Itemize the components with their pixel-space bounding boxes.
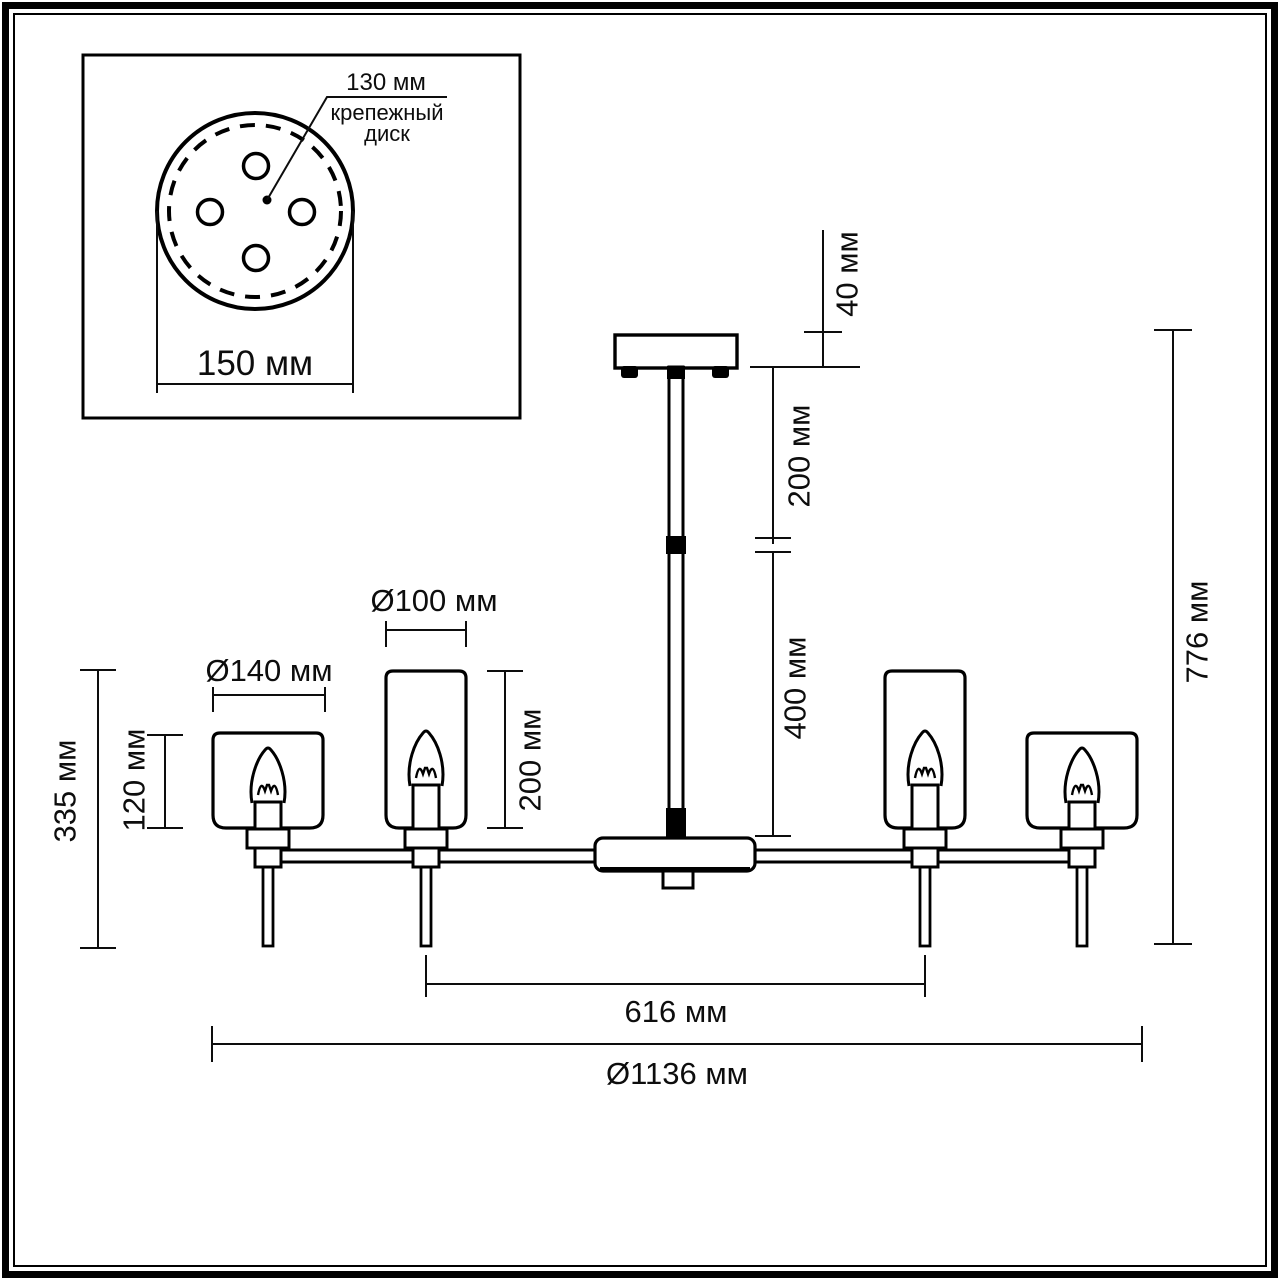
lamp-3-candle <box>912 785 938 829</box>
lamp-2-socket-upper <box>405 829 447 848</box>
lamp-4 <box>1027 733 1137 867</box>
dim-overall-height: 776 мм <box>1154 330 1215 944</box>
dim-outer-shade-diameter: Ø140 мм <box>205 653 332 712</box>
chandelier-fixture <box>213 335 1137 946</box>
dim-outer-shade-height-label: 120 мм <box>117 729 152 832</box>
dim-lower-rod: 400 мм <box>755 552 813 836</box>
canopy-foot-right <box>712 366 729 378</box>
lamp-1-socket-upper <box>247 829 289 848</box>
dim-canopy-height-label: 40 мм <box>830 231 865 317</box>
canopy-foot-left <box>621 366 638 378</box>
dim-overall-diameter-label: Ø1136 мм <box>606 1056 748 1091</box>
dim-inner-shade-diameter-label: Ø100 мм <box>370 583 497 618</box>
mounting-plate-circle <box>157 113 353 309</box>
lamp-3 <box>885 671 965 867</box>
dim-outer-shade-height: 120 мм <box>117 729 184 832</box>
chandelier-dimension-drawing: 130 мм крепежный диск 150 мм <box>0 0 1280 1280</box>
page: 130 мм крепежный диск 150 мм <box>0 0 1280 1280</box>
lamp-3-socket-upper <box>904 829 946 848</box>
disc-diameter-label: 130 мм <box>346 69 426 96</box>
dim-inner-lamps-span: 616 мм <box>426 955 925 1029</box>
rod-top-connector <box>667 366 685 379</box>
dim-lower-rod-label: 400 мм <box>778 637 813 740</box>
hanging-rod <box>669 367 683 839</box>
plate-diameter-label: 150 мм <box>197 344 313 383</box>
dim-upper-rod: 200 мм <box>755 367 817 552</box>
lamp-4-socket-lower <box>1069 848 1095 867</box>
lamp-2 <box>386 671 466 867</box>
lamp-4-candle <box>1069 802 1095 829</box>
ceiling-canopy <box>615 335 737 368</box>
disc-name-label-line2: диск <box>364 121 410 146</box>
dim-canopy-height: 40 мм <box>750 230 865 367</box>
dim-upper-rod-label: 200 мм <box>782 405 817 508</box>
lamp-2-candle <box>413 785 439 829</box>
lamp-3-stem <box>920 866 930 946</box>
lamp-1-stem <box>263 866 273 946</box>
dim-inner-shade-height: 200 мм <box>487 671 548 828</box>
lamp-2-socket-lower <box>413 848 439 867</box>
mounting-plate-inset: 130 мм крепежный диск 150 мм <box>83 55 520 418</box>
mounting-hole-left <box>198 200 223 225</box>
dim-arm-lamp-height: 335 мм <box>48 670 117 948</box>
lamp-4-stem <box>1077 866 1087 946</box>
dim-overall-diameter: Ø1136 мм <box>212 1026 1142 1091</box>
lamp-1-candle <box>255 802 281 829</box>
lamp-3-socket-lower <box>912 848 938 867</box>
lamp-2-stem <box>421 866 431 946</box>
rod-joint-upper <box>666 536 686 554</box>
hub-knob <box>663 871 693 888</box>
lamp-1-socket-lower <box>255 848 281 867</box>
mounting-hole-right <box>290 200 315 225</box>
dim-arm-lamp-height-label: 335 мм <box>48 740 83 843</box>
lamp-4-socket-upper <box>1061 829 1103 848</box>
mounting-hole-top <box>244 154 269 179</box>
dim-inner-lamps-span-label: 616 мм <box>625 994 728 1029</box>
center-hub <box>595 838 755 871</box>
dim-inner-shade-diameter: Ø100 мм <box>370 583 497 647</box>
lamp-1 <box>213 733 323 867</box>
rod-joint-lower <box>666 808 686 839</box>
mounting-hole-bottom <box>244 246 269 271</box>
dim-outer-shade-diameter-label: Ø140 мм <box>205 653 332 688</box>
dim-overall-height-label: 776 мм <box>1180 581 1215 684</box>
dim-inner-shade-height-label: 200 мм <box>513 709 548 812</box>
